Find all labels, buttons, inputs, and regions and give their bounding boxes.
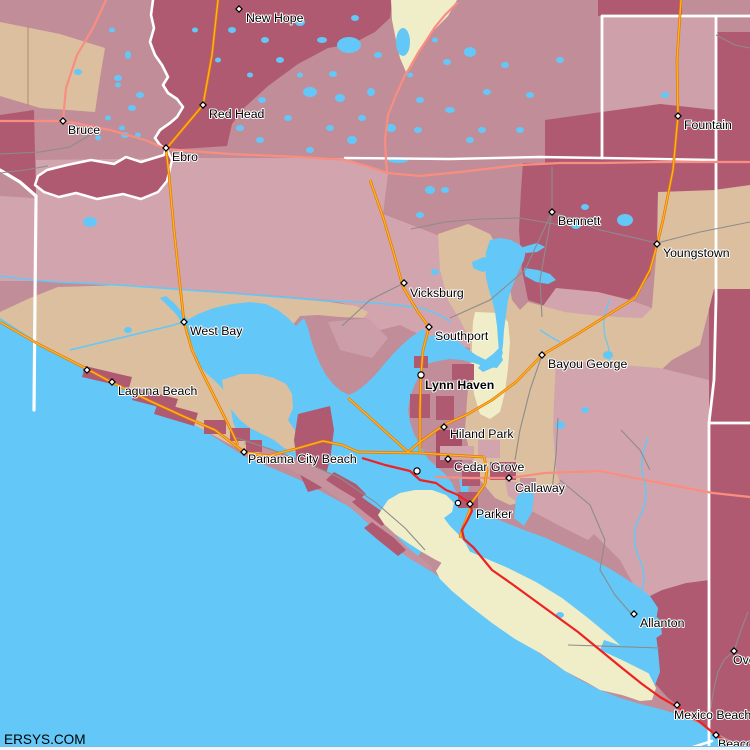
svg-text:Callaway: Callaway: [515, 481, 566, 495]
svg-text:Fountain: Fountain: [684, 118, 732, 132]
svg-text:New Hope: New Hope: [246, 11, 304, 25]
svg-text:Mexico Beach: Mexico Beach: [674, 708, 750, 722]
svg-text:ERSYS.COM: ERSYS.COM: [4, 732, 86, 747]
svg-text:Bayou George: Bayou George: [548, 357, 627, 371]
svg-text:Bennett: Bennett: [558, 214, 601, 228]
svg-text:Panama City Beach: Panama City Beach: [248, 452, 357, 466]
svg-text:Allanton: Allanton: [640, 616, 685, 630]
svg-text:Lynn Haven: Lynn Haven: [425, 378, 494, 392]
svg-text:Hiland Park: Hiland Park: [450, 427, 514, 441]
svg-text:Vicksburg: Vicksburg: [410, 286, 464, 300]
svg-text:Bruce: Bruce: [68, 123, 100, 137]
svg-text:Cedar Grove: Cedar Grove: [454, 460, 525, 474]
svg-text:Parker: Parker: [476, 507, 512, 521]
svg-text:Laguna Beach: Laguna Beach: [118, 384, 197, 398]
svg-text:Red Head: Red Head: [209, 107, 265, 121]
svg-text:Overstreet: Overstreet: [733, 653, 750, 667]
svg-text:Southport: Southport: [435, 329, 489, 343]
svg-text:Ebro: Ebro: [172, 150, 198, 164]
svg-text:Youngstown: Youngstown: [663, 246, 730, 260]
svg-text:West Bay: West Bay: [190, 324, 243, 338]
